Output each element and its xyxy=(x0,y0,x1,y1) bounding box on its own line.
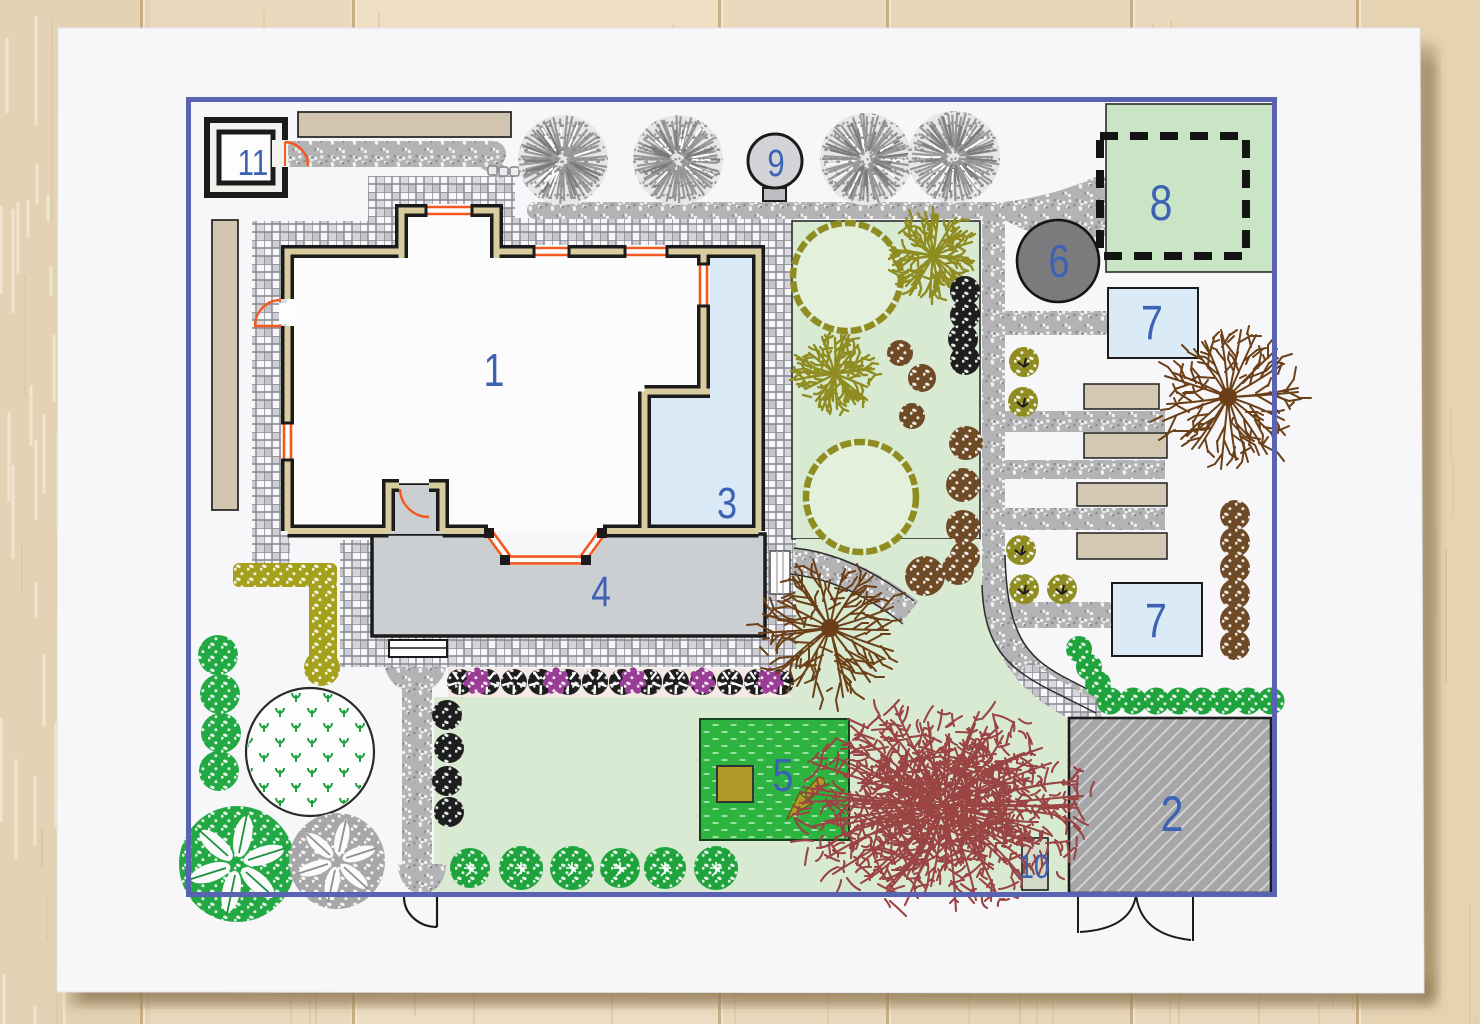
svg-text:7: 7 xyxy=(1141,296,1163,350)
svg-text:11: 11 xyxy=(238,142,269,182)
svg-text:9: 9 xyxy=(767,143,784,185)
svg-text:2: 2 xyxy=(1161,786,1184,842)
svg-text:7: 7 xyxy=(1145,594,1167,648)
svg-text:8: 8 xyxy=(1150,175,1173,231)
svg-text:6: 6 xyxy=(1049,235,1070,286)
svg-text:5: 5 xyxy=(773,749,794,800)
svg-text:10: 10 xyxy=(1018,847,1049,885)
svg-text:1: 1 xyxy=(484,344,505,395)
svg-text:4: 4 xyxy=(591,568,611,616)
svg-text:3: 3 xyxy=(717,479,737,528)
